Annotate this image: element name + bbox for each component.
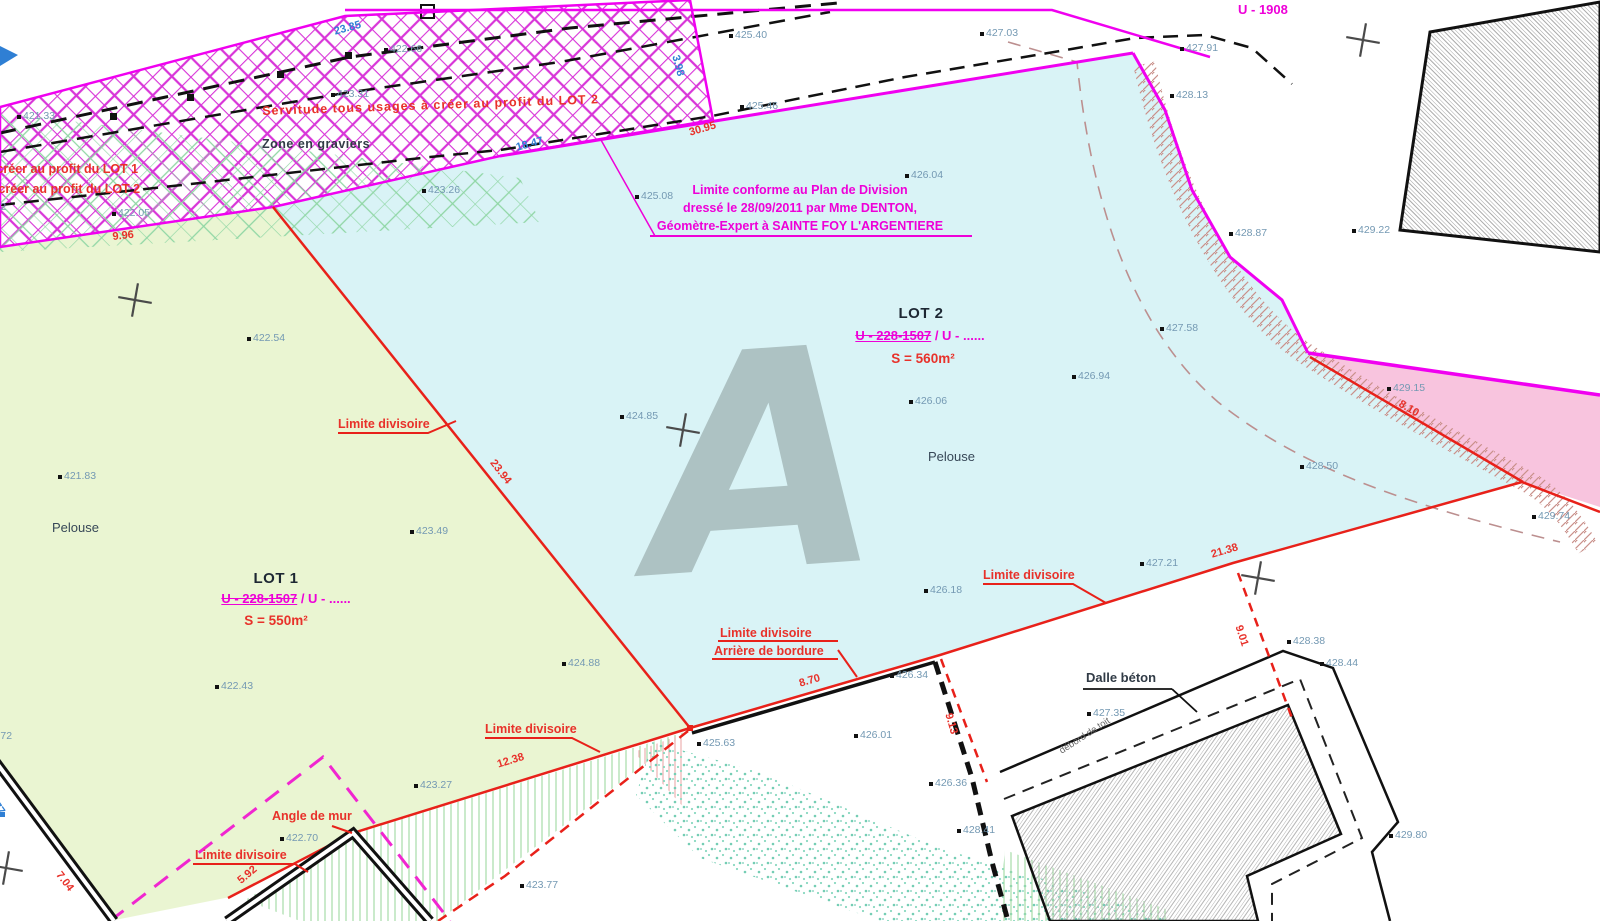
parcel-new-ref: / U - ...... (931, 328, 984, 343)
elevation-label: 425.08 (641, 191, 673, 202)
elevation-label: 423.77 (526, 880, 558, 891)
dimension-label: 23.85 (333, 20, 363, 38)
map-label: Dalle béton (1086, 671, 1156, 685)
elevation-label: 423.27 (420, 780, 452, 791)
elevation-label: 426.94 (1078, 371, 1110, 382)
elevation-label: 429.80 (1395, 830, 1427, 841)
elevation-label: 428.87 (1235, 228, 1267, 239)
dimension-label: 3.98 (669, 54, 686, 78)
elevation-label: 422.05 (118, 208, 150, 219)
elevation-label: 426.34 (896, 670, 928, 681)
elevation-point-dot (929, 782, 933, 786)
elevation-point-dot (1087, 712, 1091, 716)
elevation-point-dot (1180, 47, 1184, 51)
map-label: Limite divisoire (485, 723, 577, 736)
map-label: Arrière de bordure (714, 645, 824, 658)
elevation-label: 427.58 (1166, 323, 1198, 334)
elevation-point-dot (215, 685, 219, 689)
elevation-point-dot (890, 674, 894, 678)
dimension-label: 23.94 (487, 458, 513, 487)
map-label: Limite divisoire (983, 569, 1075, 582)
elevation-label: 427.03 (986, 28, 1018, 39)
map-label: Angle de mur (272, 810, 352, 823)
elevation-label: 426.06 (915, 396, 947, 407)
elevation-point-dot (410, 530, 414, 534)
map-label: U - 1908 (1238, 3, 1288, 17)
elevation-point-dot (1160, 327, 1164, 331)
map-label: Limite divisoire (195, 849, 287, 862)
elevation-label: 427.91 (1186, 43, 1218, 54)
elevation-label: 429.15 (1393, 383, 1425, 394)
elevation-label: 423.26 (428, 185, 460, 196)
map-label: Servitude tous usages à créer au profit … (262, 93, 599, 118)
elevation-label: 422.54 (253, 333, 285, 344)
elevation-label: 421.72 (0, 731, 12, 742)
lot-name-2: LOT 2 (898, 306, 943, 322)
elevation-label: 424.85 (626, 411, 658, 422)
elevation-point-dot (980, 32, 984, 36)
elevation-point-dot (905, 174, 909, 178)
elevation-point-dot (17, 115, 21, 119)
map-label: Zone en graviers (262, 138, 370, 151)
lot-name-1: LOT 1 (253, 571, 298, 587)
elevation-point-dot (729, 34, 733, 38)
dimension-label: 7.04 (53, 870, 75, 894)
elevation-point-dot (1140, 562, 1144, 566)
elevation-label: 421.83 (64, 471, 96, 482)
elevation-point-dot (1072, 375, 1076, 379)
elevation-label: 427.21 (1146, 558, 1178, 569)
elevation-point-dot (331, 93, 335, 97)
dimension-label: 12.38 (496, 752, 526, 771)
elevation-point-dot (520, 884, 524, 888)
elevation-point-dot (1532, 515, 1536, 519)
elevation-point-dot (1287, 640, 1291, 644)
elevation-point-dot (112, 212, 116, 216)
elevation-point-dot (909, 400, 913, 404)
elevation-label: 423.31 (337, 89, 369, 100)
elevation-label: 422.66 (390, 44, 422, 55)
elevation-point-dot (58, 475, 62, 479)
dimension-label: 9.01 (1232, 624, 1250, 648)
dimension-label: 9.13 (942, 712, 959, 736)
elevation-point-dot (1300, 465, 1304, 469)
annotation-layer: 421.33422.66423.31422.05422.42423.26425.… (0, 0, 1600, 921)
elevation-point-dot (384, 48, 388, 52)
elevation-label: 426.36 (935, 778, 967, 789)
elevation-label: 426.04 (911, 170, 943, 181)
lot-parcel-ref-1: U - 228-1507 / U - ...... (221, 592, 350, 606)
map-label: à créer au profit du LOT 1 (0, 163, 138, 176)
map-label: Pelouse (52, 521, 99, 535)
elevation-label: 429.74 (1538, 511, 1570, 522)
map-label: Pelouse (928, 450, 975, 464)
elevation-point-dot (1387, 387, 1391, 391)
parcel-old-ref: U - 228-1507 (221, 591, 297, 606)
dimension-label: 21.38 (1210, 542, 1240, 561)
elevation-point-dot (957, 829, 961, 833)
map-label: à créer au profit du LOT 2 (0, 183, 140, 196)
lot-parcel-ref-2: U - 228-1507 / U - ...... (855, 329, 984, 343)
elevation-point-dot (740, 105, 744, 109)
division-note-line: Limite conforme au Plan de Division (692, 184, 907, 197)
elevation-label: 425.46 (746, 101, 778, 112)
elevation-label: 426.18 (930, 585, 962, 596)
elevation-label: 428.41 (963, 825, 995, 836)
parcel-new-ref: / U - ...... (297, 591, 350, 606)
elevation-label: 428.38 (1293, 636, 1325, 647)
division-note-line: dressé le 28/09/2011 par Mme DENTON, (683, 202, 917, 215)
map-label: débord de toit (1058, 716, 1112, 756)
elevation-point-dot (562, 662, 566, 666)
elevation-point-dot (1170, 94, 1174, 98)
elevation-label: 425.40 (735, 30, 767, 41)
elevation-label: 422.70 (286, 833, 318, 844)
division-note-line: Géomètre-Expert à SAINTE FOY L'ARGENTIER… (657, 220, 943, 233)
elevation-point-dot (697, 742, 701, 746)
dimension-label: 5.92 (236, 864, 260, 887)
elevation-point-dot (924, 589, 928, 593)
elevation-point-dot (635, 195, 639, 199)
elevation-point-dot (1389, 834, 1393, 838)
elevation-point-dot (1320, 662, 1324, 666)
elevation-point-dot (854, 734, 858, 738)
elevation-point-dot (247, 337, 251, 341)
elevation-label: 425.63 (703, 738, 735, 749)
elevation-label: 422.42 (0, 202, 6, 213)
elevation-label: 423.49 (416, 526, 448, 537)
elevation-label: 428.50 (1306, 461, 1338, 472)
elevation-point-dot (1229, 232, 1233, 236)
elevation-label: 428.13 (1176, 90, 1208, 101)
elevation-label: 428.44 (1326, 658, 1358, 669)
elevation-point-dot (414, 784, 418, 788)
parcel-old-ref: U - 228-1507 (855, 328, 931, 343)
elevation-label: 429.22 (1358, 225, 1390, 236)
dimension-label: 9.96 (112, 230, 135, 244)
dimension-label: 18.47 (515, 136, 545, 154)
elevation-label: 422.43 (221, 681, 253, 692)
elevation-label: 424.88 (568, 658, 600, 669)
map-label: Limite divisoire (338, 418, 430, 431)
elevation-point-dot (1352, 229, 1356, 233)
elevation-label: 426.01 (860, 730, 892, 741)
elevation-label: 427.35 (1093, 708, 1125, 719)
dimension-label: 8.70 (798, 673, 822, 690)
elevation-point-dot (422, 189, 426, 193)
map-label: Limite divisoire (720, 627, 812, 640)
dimension-label: 30.95 (688, 120, 718, 139)
dimension-label: 8.10 (1396, 399, 1420, 420)
survey-plan: A 421.33422.66423.31422.05422.42423.2642… (0, 0, 1600, 921)
lot-area-1: S = 550m² (244, 614, 307, 628)
elevation-point-dot (620, 415, 624, 419)
elevation-point-dot (280, 837, 284, 841)
lot-area-2: S = 560m² (891, 352, 954, 366)
elevation-label: 421.33 (23, 111, 55, 122)
dimension-label: 1.77 (0, 793, 6, 817)
